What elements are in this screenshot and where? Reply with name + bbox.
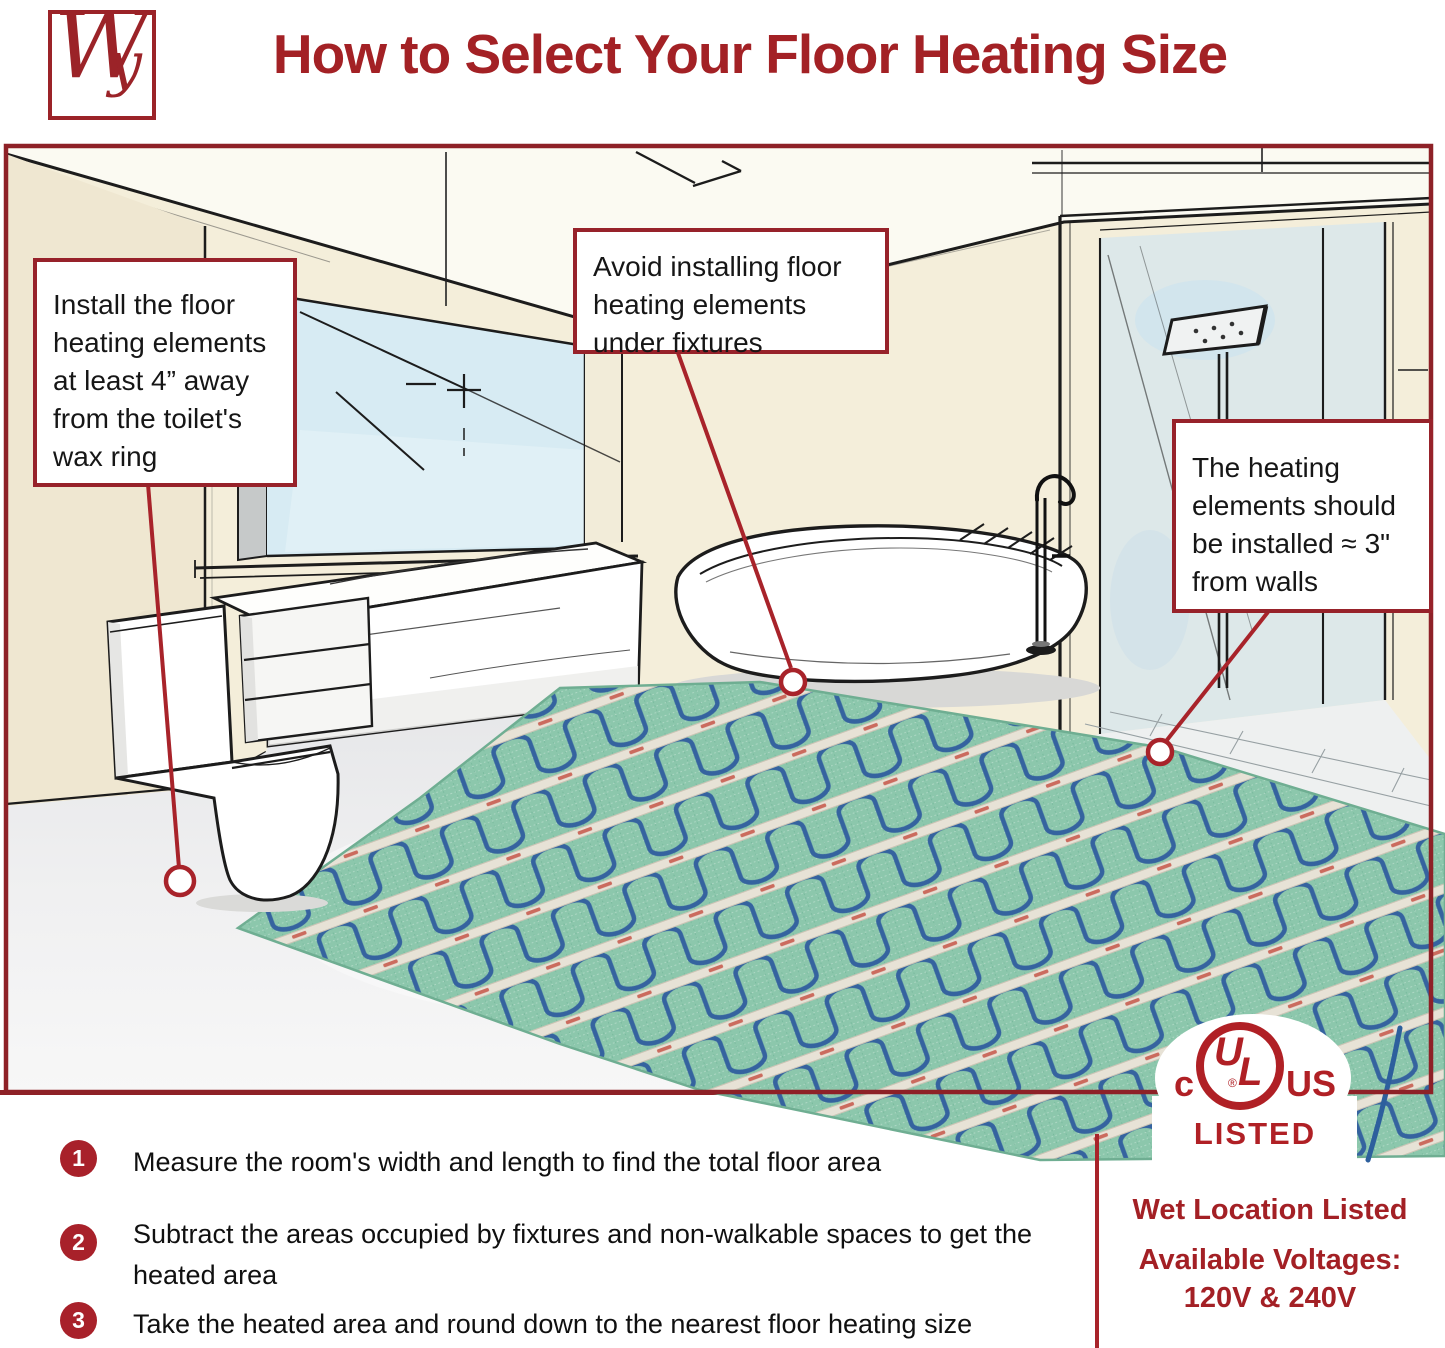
callout-walls-text: The heating elements should be installed…	[1192, 452, 1396, 597]
step-3: 3 Take the heated area and round down to…	[60, 1302, 972, 1345]
brand-logo-letter-y: y	[108, 34, 142, 94]
ul-badge-listed: LISTED	[1148, 1116, 1362, 1152]
ul-badge-row: c U L ® US	[1148, 1022, 1362, 1110]
callout-fixtures-text: Avoid installing floor heating elements …	[593, 251, 842, 358]
ul-badge-c: c	[1174, 1066, 1194, 1102]
step-1-text: Measure the room's width and length to f…	[133, 1140, 881, 1183]
ul-badge-l: L	[1238, 1052, 1262, 1092]
step-1: 1 Measure the room's width and length to…	[60, 1140, 881, 1183]
step-3-text: Take the heated area and round down to t…	[133, 1302, 972, 1345]
ul-badge-us: US	[1286, 1066, 1336, 1102]
callout-toilet-clearance: Install the floor heating elements at le…	[33, 258, 297, 487]
wet-location-note: Wet Location Listed	[1105, 1194, 1435, 1227]
step-3-badge: 3	[60, 1302, 97, 1339]
step-1-badge: 1	[60, 1140, 97, 1177]
voltages-value: 120V & 240V	[1105, 1282, 1435, 1315]
ul-badge-circle: U L ®	[1196, 1022, 1284, 1110]
brand-logo: W y	[48, 10, 156, 120]
step-2: 2 Subtract the areas occupied by fixture…	[60, 1212, 1063, 1295]
section-divider	[1095, 1134, 1099, 1348]
registered-trademark-icon: ®	[1228, 1076, 1237, 1090]
callout-avoid-fixtures: Avoid installing floor heating elements …	[573, 228, 889, 354]
callout-wall-clearance: The heating elements should be installed…	[1172, 419, 1433, 613]
callout-toilet-text: Install the floor heating elements at le…	[53, 289, 266, 472]
step-2-text: Subtract the areas occupied by fixtures …	[133, 1212, 1063, 1295]
step-2-badge: 2	[60, 1224, 97, 1261]
page-title: How to Select Your Floor Heating Size	[180, 22, 1320, 86]
voltages-label: Available Voltages:	[1105, 1244, 1435, 1277]
ul-listed-badge: c U L ® US LISTED	[1148, 1022, 1362, 1152]
